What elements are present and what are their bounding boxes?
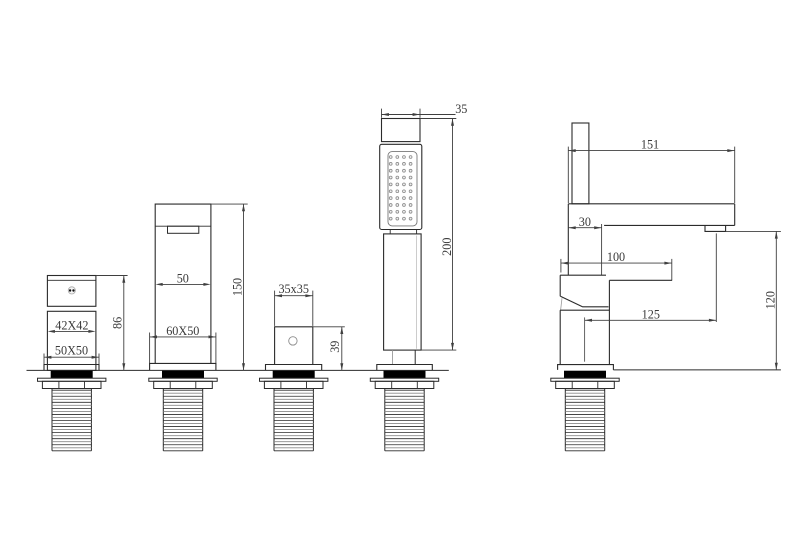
svg-text:60X50: 60X50	[166, 324, 199, 338]
svg-text:35x35: 35x35	[278, 282, 308, 296]
svg-text:35: 35	[455, 102, 467, 116]
svg-text:200: 200	[440, 238, 454, 256]
svg-text:120: 120	[763, 291, 777, 309]
svg-text:39: 39	[328, 341, 342, 353]
svg-text:30: 30	[579, 215, 591, 229]
svg-text:50: 50	[177, 271, 189, 285]
svg-text:151: 151	[641, 138, 659, 152]
svg-text:125: 125	[642, 308, 660, 322]
svg-text:100: 100	[607, 250, 625, 264]
svg-text:86: 86	[111, 317, 125, 329]
svg-text:42X42: 42X42	[55, 319, 88, 333]
svg-text:50X50: 50X50	[55, 344, 88, 358]
svg-text:150: 150	[230, 278, 244, 296]
